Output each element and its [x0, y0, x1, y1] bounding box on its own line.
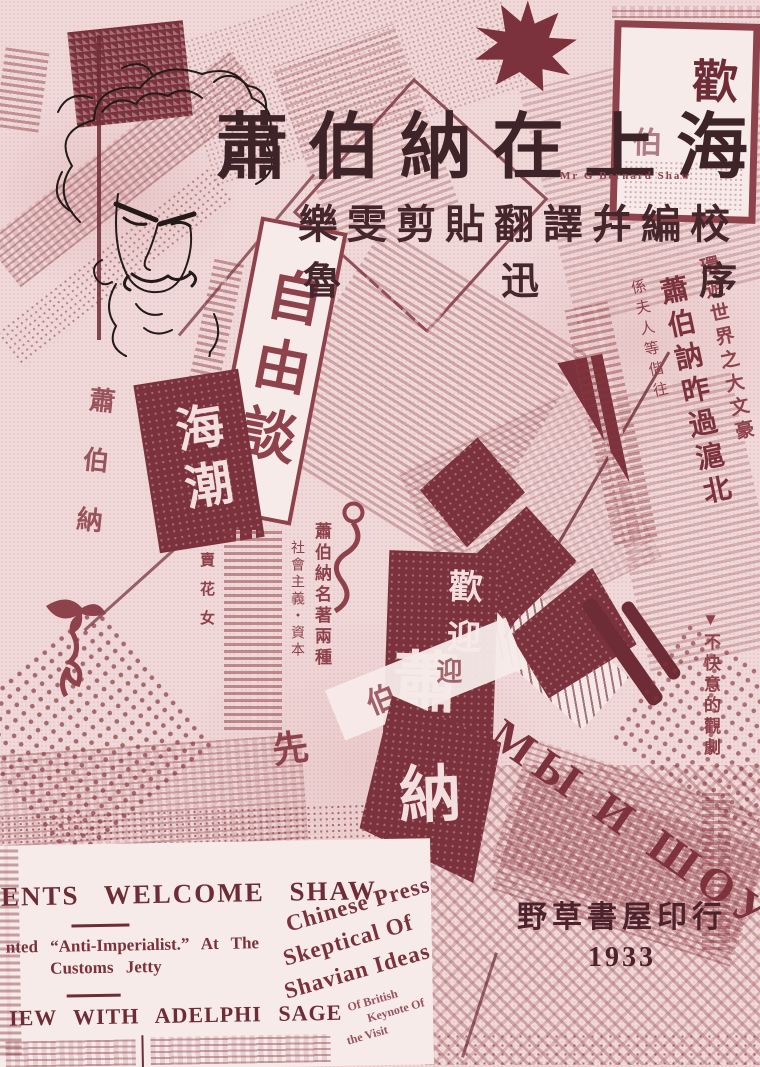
headline-rule — [71, 923, 129, 927]
na-character: 納 — [397, 743, 462, 835]
book-advert: 蕭伯納名著兩種 社會主義・資本 賣花女 — [190, 522, 342, 742]
english-headline-2b: Customs Jetty — [50, 957, 162, 979]
imprint: 野草書屋印行 1933 — [492, 892, 752, 974]
leaf-ornament — [456, 0, 588, 98]
press-subline-3: the Visit — [345, 1022, 390, 1048]
masthead-subtitle: 樂雯剪貼翻譯幷編校 — [298, 192, 748, 250]
body-text-noise — [5, 1039, 135, 1067]
book-cover: 歡 伯 自由談 海潮 蕭伯納 蕭伯納名著兩種 社會主義・資本 賣花女 歡迎 蕭 — [0, 0, 760, 1067]
xian-character: 先 — [269, 718, 312, 775]
ying-character: 迎 — [436, 651, 462, 688]
preface-credit: 魯 迅 序 — [303, 250, 737, 305]
english-headline-2a: nted “Anti-Imperialist.” At The — [6, 933, 260, 957]
book-advert-pygmalion: 賣花女 — [196, 552, 217, 639]
english-caption: Mr G Bernard Shaw — [560, 170, 691, 182]
publication-year: 1933 — [492, 942, 752, 974]
book-advert-line: 社會主義・資本 — [286, 540, 306, 659]
book-advert-title: 蕭伯納名著兩種 — [309, 522, 334, 669]
floral-flourish — [26, 588, 126, 708]
headline-rule — [67, 994, 121, 998]
sea-tide-label: 海潮 — [155, 398, 242, 524]
newsprint-texture — [224, 530, 282, 730]
subtitle-text: 樂雯剪貼翻譯幷編校 — [298, 202, 739, 247]
newsprint-texture — [612, 6, 760, 18]
preface-char-xu: 序 — [699, 250, 737, 305]
column-divider — [141, 1035, 144, 1067]
preface-char-lu: 魯 — [303, 250, 341, 305]
publisher-name: 野草書屋印行 — [492, 892, 752, 936]
preface-char-xun: 迅 — [501, 250, 539, 305]
